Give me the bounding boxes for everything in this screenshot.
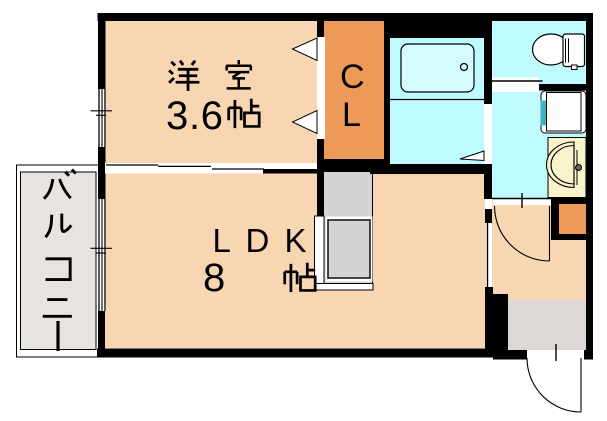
svg-text:D: D — [246, 222, 270, 259]
svg-text:8: 8 — [203, 256, 225, 300]
svg-text:C: C — [340, 58, 365, 96]
svg-text:3.6: 3.6 — [166, 94, 223, 138]
svg-text:L: L — [213, 222, 231, 259]
svg-text:L: L — [342, 96, 361, 134]
svg-text:K: K — [285, 222, 307, 259]
